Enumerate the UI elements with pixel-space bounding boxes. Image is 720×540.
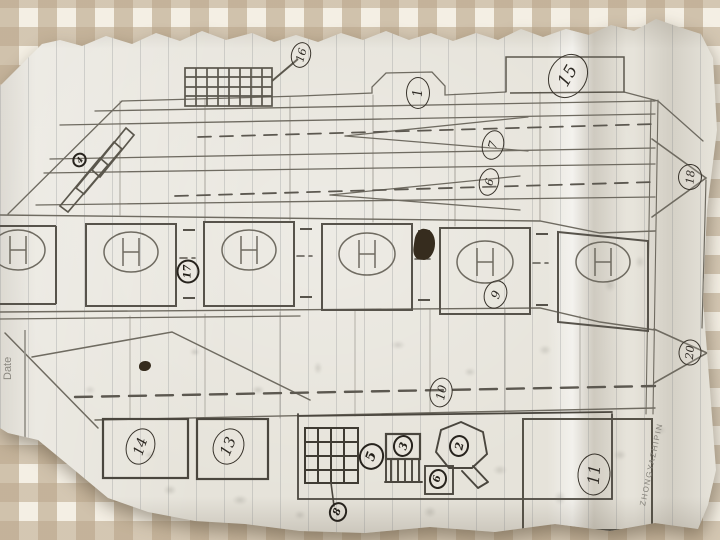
paper-shadow: 16 1 15 7 6 18 4 17 9 10 20 14 13 5 8 3 … xyxy=(0,0,720,540)
ink-bleed-through xyxy=(0,0,720,540)
photo-scene: 16 1 15 7 6 18 4 17 9 10 20 14 13 5 8 3 … xyxy=(0,0,720,540)
notepad-sheet: 16 1 15 7 6 18 4 17 9 10 20 14 13 5 8 3 … xyxy=(0,0,720,540)
printed-no-label: No. xyxy=(2,452,14,482)
